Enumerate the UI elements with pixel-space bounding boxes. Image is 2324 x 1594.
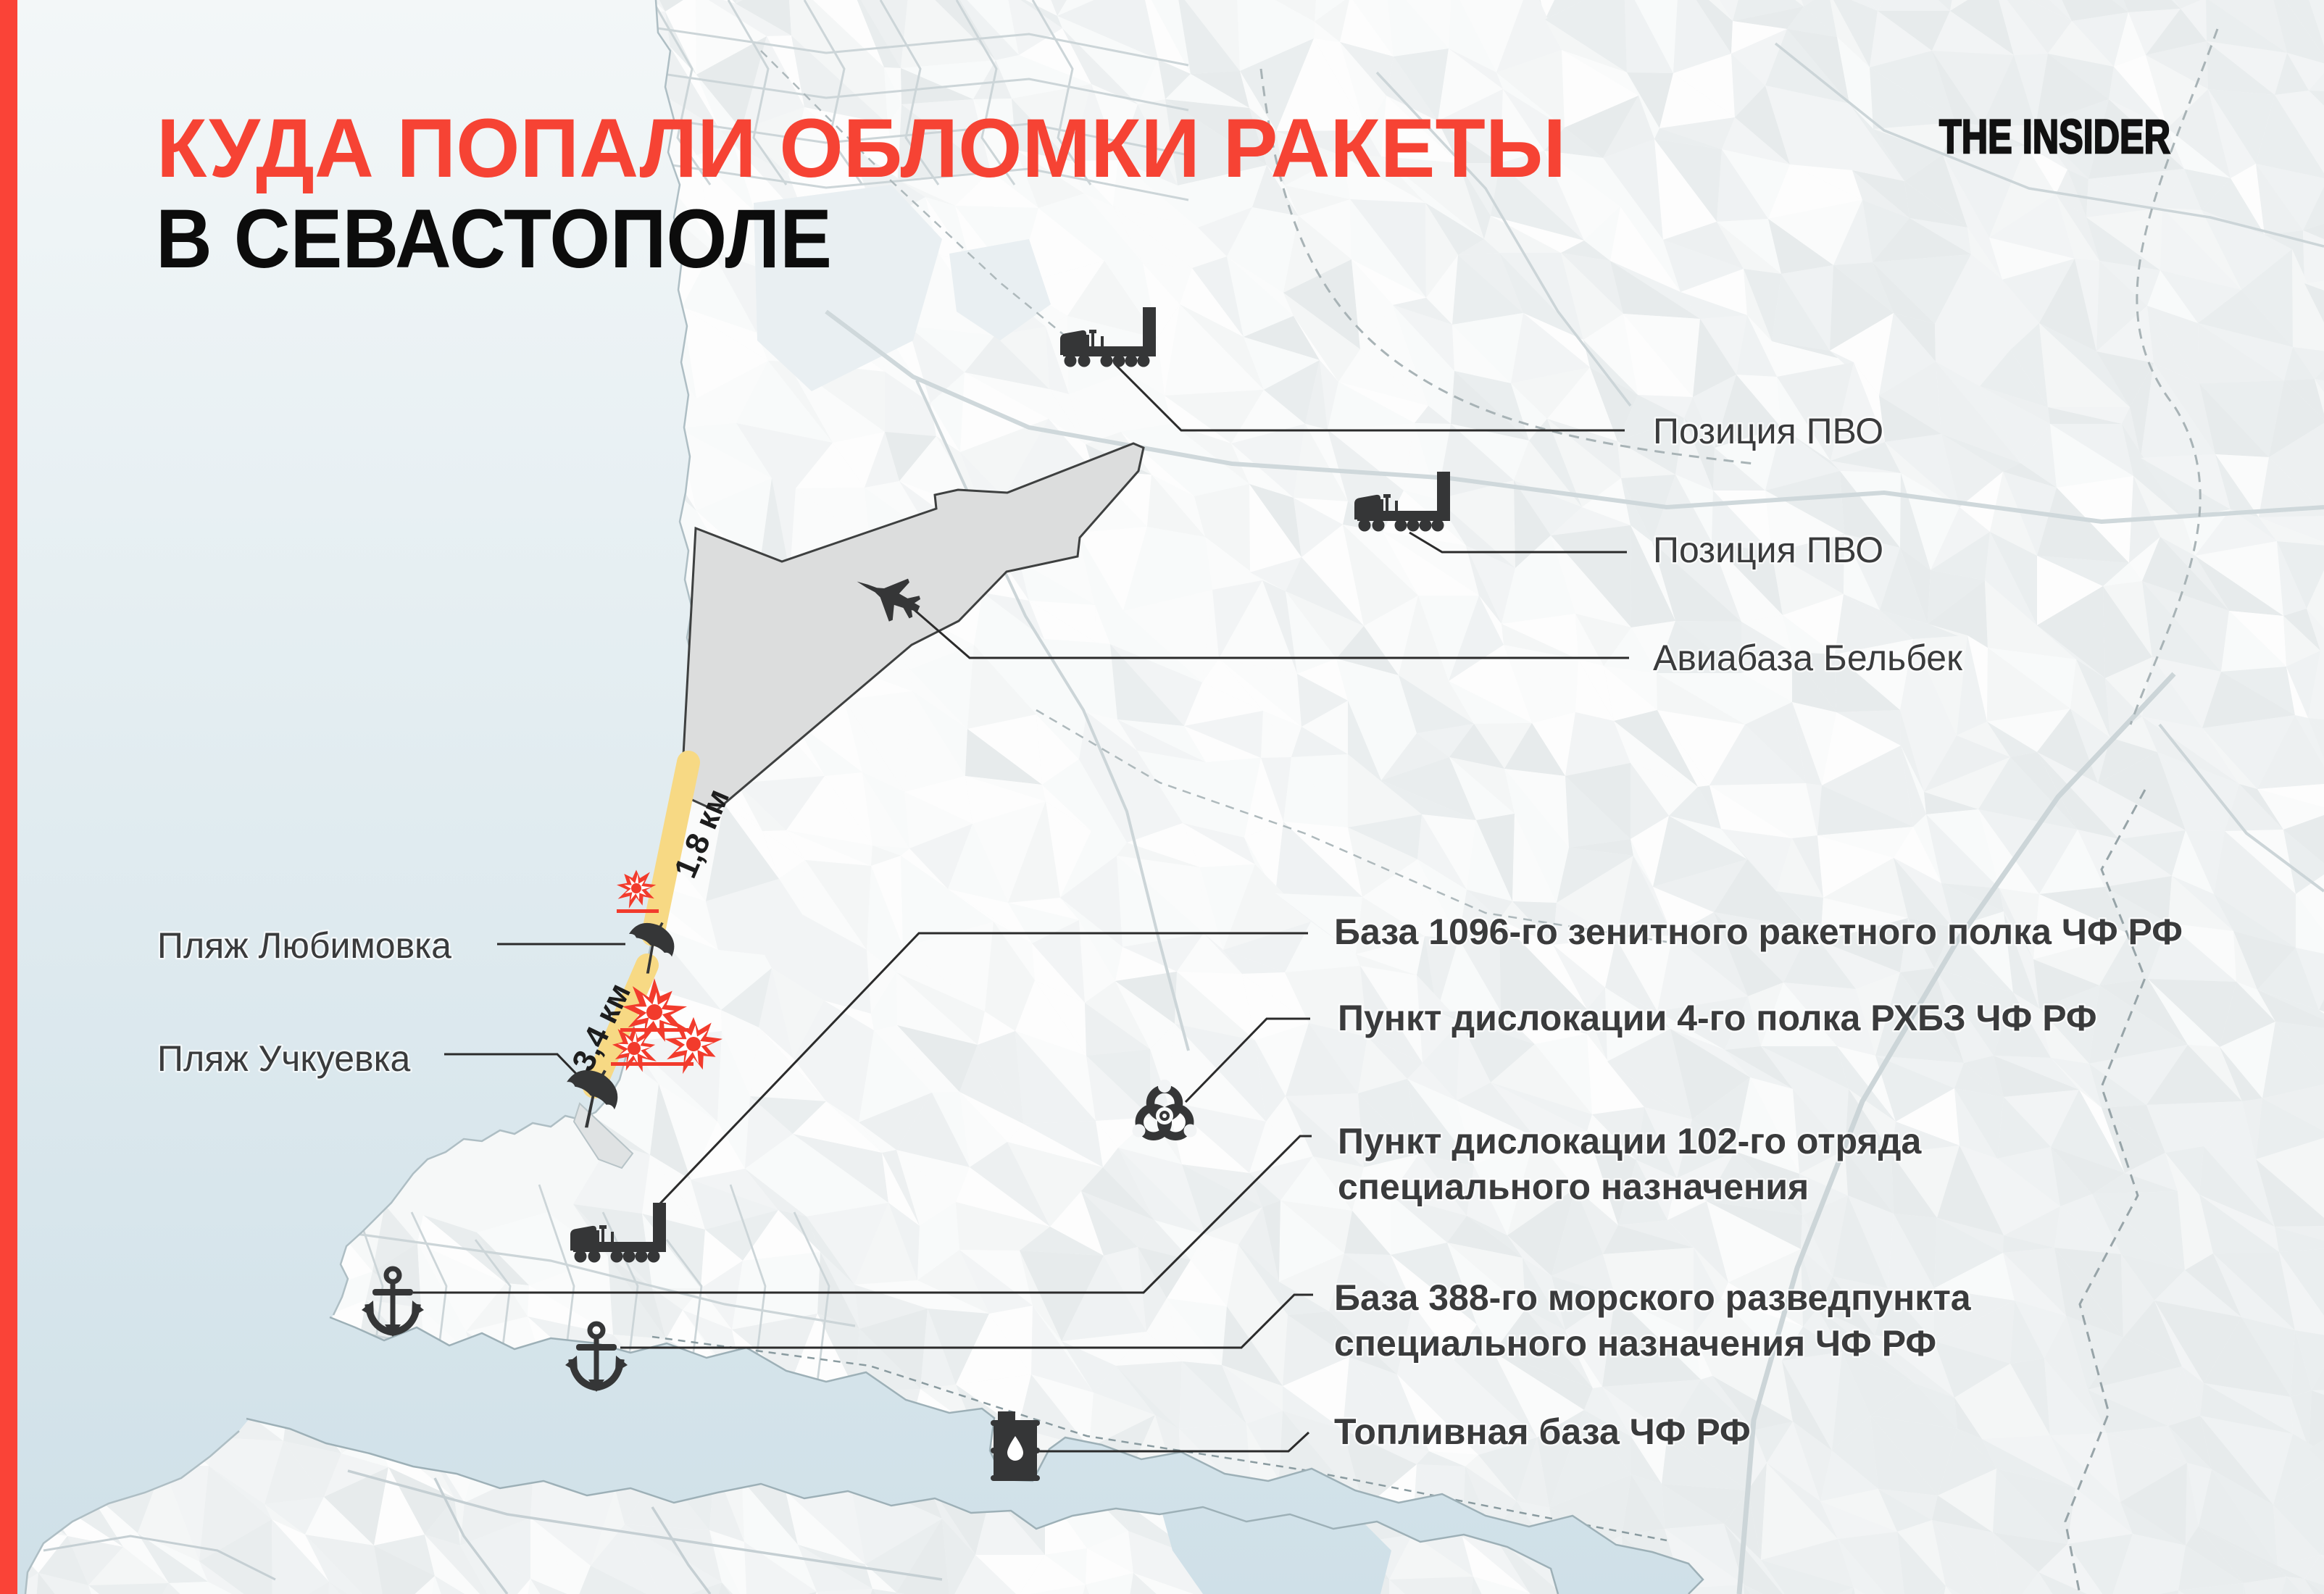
svg-text:THE INSIDER: THE INSIDER xyxy=(1939,109,2170,163)
svg-text:Пункт дислокации 4-го полка РХ: Пункт дислокации 4-го полка РХБЗ ЧФ РФ xyxy=(1338,998,2097,1038)
svg-text:База 1096-го зенитного ракетно: База 1096-го зенитного ракетного полка Ч… xyxy=(1334,911,2183,952)
svg-text:Пляж Любимовка: Пляж Любимовка xyxy=(157,925,451,966)
svg-text:Позиция ПВО: Позиция ПВО xyxy=(1653,411,1883,451)
svg-text:Пункт дислокации 102-го отряда: Пункт дислокации 102-го отряда xyxy=(1338,1121,1922,1161)
svg-text:В СЕВАСТОПОЛЕ: В СЕВАСТОПОЛЕ xyxy=(156,193,832,285)
svg-text:База 388-го морского разведпун: База 388-го морского разведпункта xyxy=(1334,1277,1972,1318)
svg-text:КУДА ПОПАЛИ ОБЛОМКИ РАКЕТЫ: КУДА ПОПАЛИ ОБЛОМКИ РАКЕТЫ xyxy=(157,102,1566,195)
svg-text:Авиабаза Бельбек: Авиабаза Бельбек xyxy=(1653,638,1963,678)
svg-text:специального назначения ЧФ РФ: специального назначения ЧФ РФ xyxy=(1334,1323,1936,1364)
svg-text:Позиция ПВО: Позиция ПВО xyxy=(1653,530,1883,570)
svg-text:Пляж Учкуевка: Пляж Учкуевка xyxy=(157,1038,411,1079)
svg-text:специального назначения: специального назначения xyxy=(1338,1167,1809,1207)
svg-text:Топливная база ЧФ РФ: Топливная база ЧФ РФ xyxy=(1334,1411,1751,1452)
